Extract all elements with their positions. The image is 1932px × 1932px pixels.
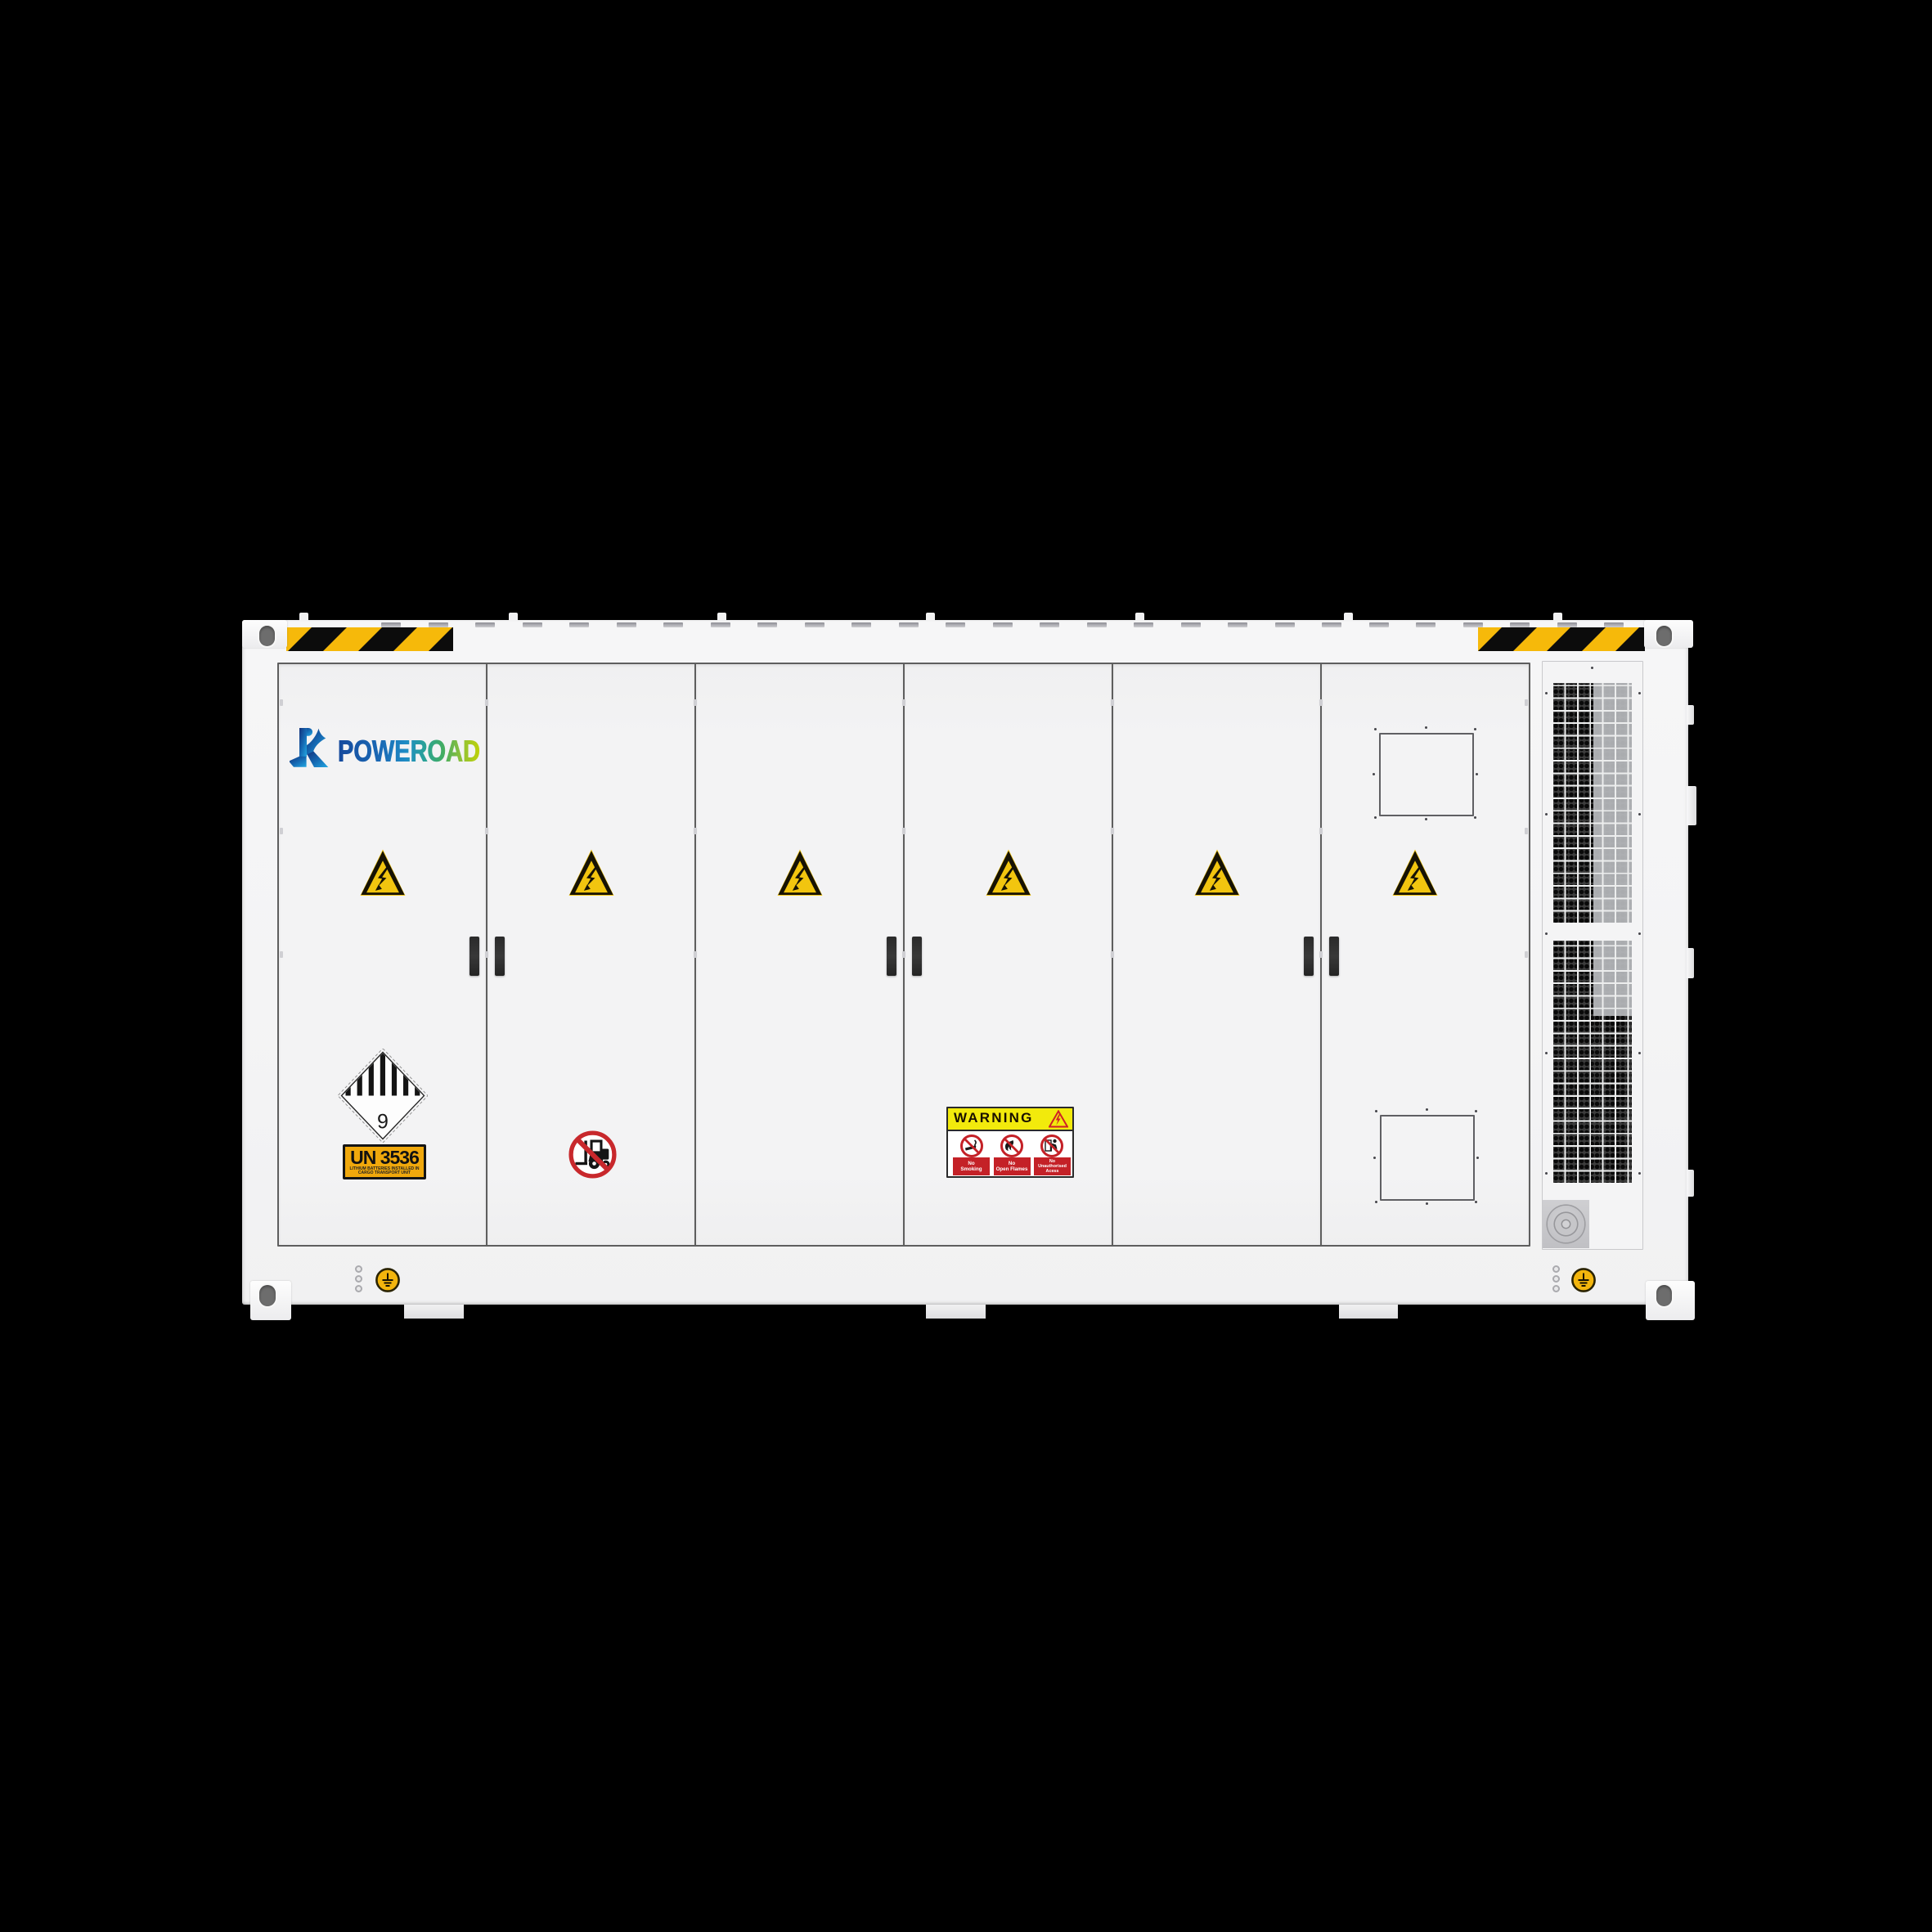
svg-text:9: 9 [377, 1111, 389, 1134]
svg-text:POWEROAD: POWEROAD [338, 735, 480, 768]
